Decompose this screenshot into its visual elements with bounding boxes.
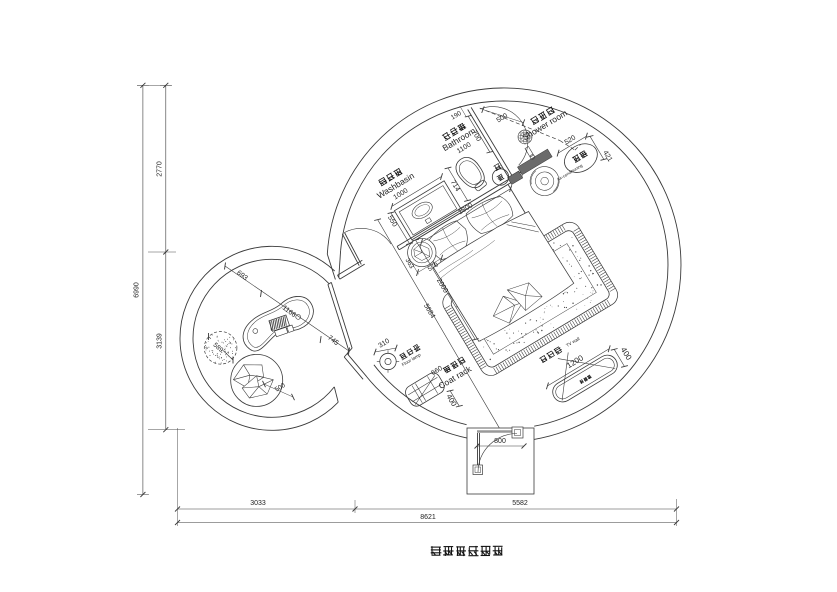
svg-text:5582: 5582 bbox=[512, 500, 528, 507]
svg-text:8621: 8621 bbox=[420, 514, 436, 521]
svg-text:6990: 6990 bbox=[134, 282, 141, 298]
svg-text:3139: 3139 bbox=[157, 333, 164, 349]
svg-text:2770: 2770 bbox=[157, 161, 164, 177]
svg-text:3033: 3033 bbox=[250, 500, 266, 507]
svg-text:800: 800 bbox=[494, 438, 506, 445]
